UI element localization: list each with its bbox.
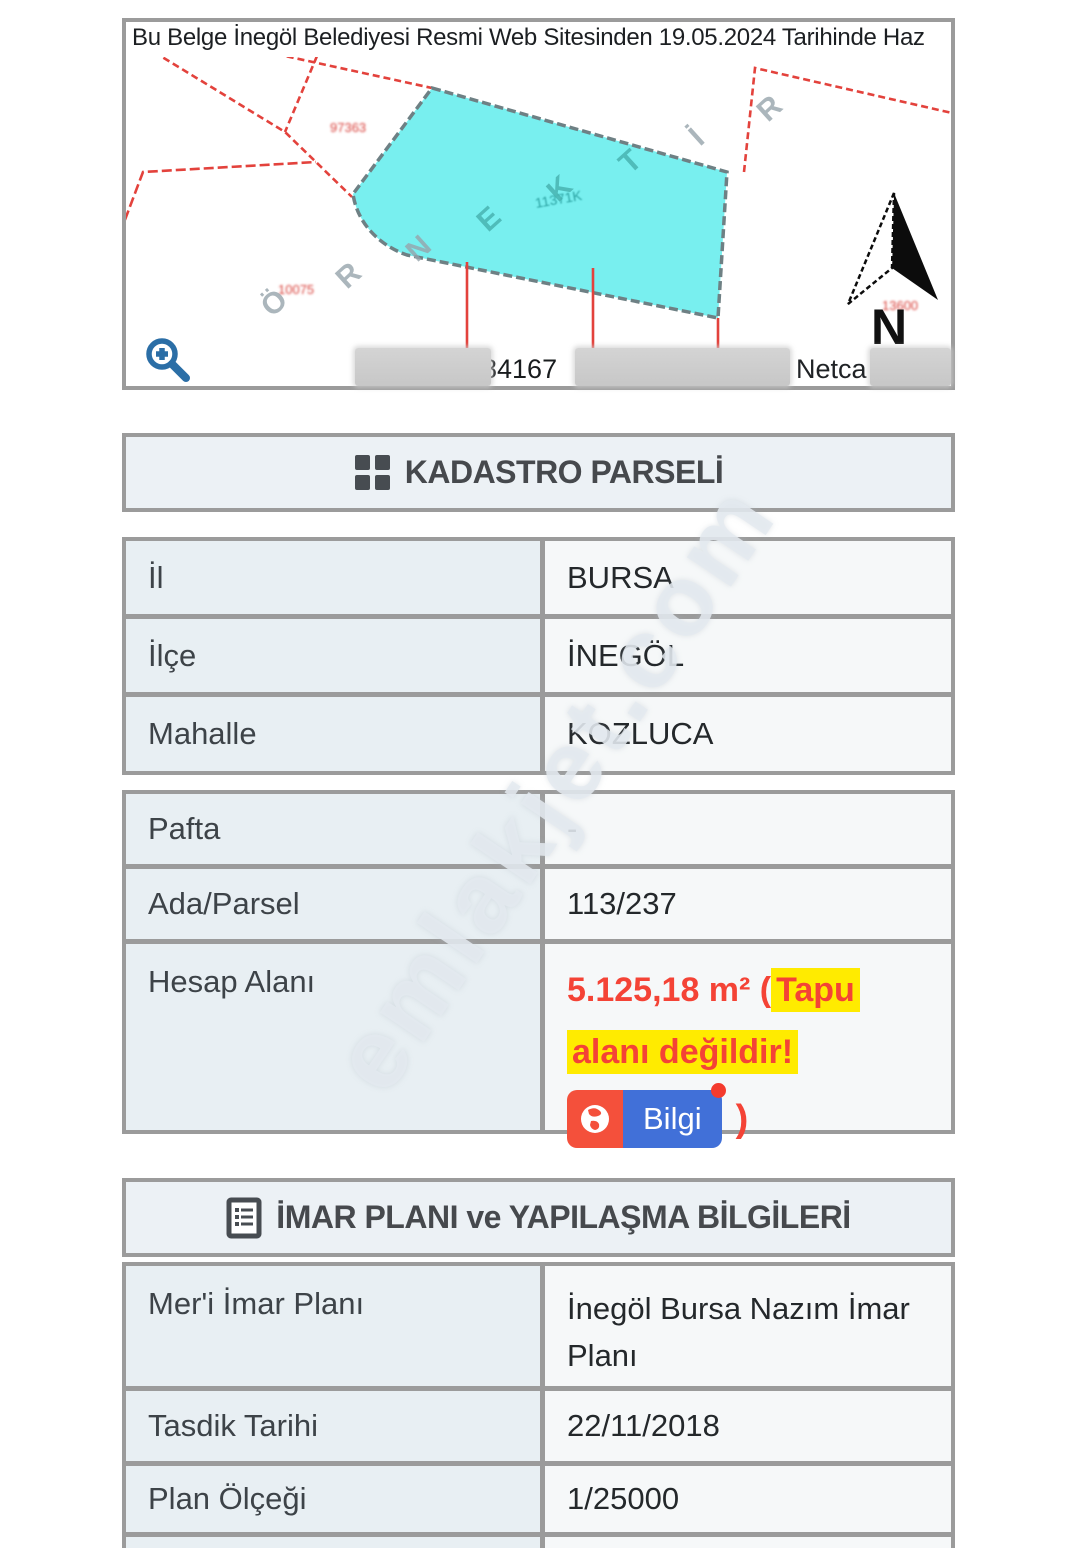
bilgi-button[interactable]: Bilgi — [567, 1090, 722, 1148]
row-label: Mahalle — [126, 697, 540, 771]
row-value: 113/237 — [545, 869, 951, 939]
svg-text:İ: İ — [683, 122, 711, 152]
section-header-kadastro: KADASTRO PARSELİ — [122, 433, 955, 512]
grid-icon — [354, 454, 391, 491]
section-title: KADASTRO PARSELİ — [405, 454, 724, 491]
svg-text:97363: 97363 — [330, 120, 366, 135]
bilgi-button-label: Bilgi — [623, 1090, 722, 1148]
row-value: KOZLUCA — [545, 697, 951, 771]
row-value: 1/25000 — [545, 1466, 951, 1532]
location-table: İl BURSA İlçe İNEGÖL Mahalle KOZLUCA — [122, 537, 955, 775]
tapu-warning-part2: alanı değildir! — [567, 1030, 798, 1074]
row-value: 22/11/2018 — [545, 1391, 951, 1461]
row-label: Pafta — [126, 794, 540, 864]
area-value: 5.125,18 m² ( — [567, 971, 771, 1009]
redaction-box — [575, 348, 790, 386]
map-number-label: 84167 — [482, 354, 557, 385]
section-header-imar: İMAR PLANI ve YAPILAŞMA BİLGİLERİ — [122, 1178, 955, 1257]
page: 97363 10075 13600 11371K Ö R N E K T İ R… — [0, 0, 1080, 1548]
svg-text:10075: 10075 — [278, 282, 314, 297]
paren-close: ) — [736, 1098, 749, 1141]
section-title: İMAR PLANI ve YAPILAŞMA BİLGİLERİ — [276, 1199, 850, 1236]
north-label: N — [871, 299, 907, 355]
row-value: İnegöl Bursa Nazım İmar Planı — [545, 1266, 951, 1386]
map-provider-label: Netca — [796, 354, 867, 385]
row-value: - — [545, 794, 951, 864]
zoom-in-icon[interactable] — [142, 334, 194, 386]
row-label — [126, 1537, 540, 1548]
redaction-box — [870, 348, 951, 386]
row-value: İNEGÖL — [545, 619, 951, 692]
row-label: İl — [126, 541, 540, 614]
parcel-map: 97363 10075 13600 11371K Ö R N E K T İ R… — [122, 18, 955, 390]
redaction-box — [355, 348, 491, 386]
row-label: Ada/Parsel — [126, 869, 540, 939]
north-arrow-icon: N — [848, 193, 938, 355]
row-value — [545, 1537, 951, 1548]
list-icon — [226, 1197, 262, 1239]
svg-text:R: R — [751, 89, 789, 128]
document-banner: Bu Belge İnegöl Belediyesi Resmi Web Sit… — [128, 24, 951, 57]
notification-dot — [711, 1083, 726, 1098]
row-label: İlçe — [126, 619, 540, 692]
globe-icon — [567, 1090, 623, 1148]
row-label: Tasdik Tarihi — [126, 1391, 540, 1461]
imar-table: Mer'i İmar Planı İnegöl Bursa Nazım İmar… — [122, 1262, 955, 1548]
row-label: Mer'i İmar Planı — [126, 1266, 540, 1386]
svg-text:R: R — [330, 256, 368, 295]
parcel-map-drawing: 97363 10075 13600 11371K Ö R N E K T İ R… — [126, 22, 951, 386]
parcel-table: Pafta - Ada/Parsel 113/237 Hesap Alanı 5… — [122, 790, 955, 1134]
hesap-alani-value: 5.125,18 m² (Tapu alanı değildir! — [545, 944, 951, 1130]
row-value: BURSA — [545, 541, 951, 614]
row-label: Plan Ölçeği — [126, 1466, 540, 1532]
tapu-warning-part1: Tapu — [771, 968, 860, 1012]
row-label: Hesap Alanı — [126, 944, 540, 1130]
